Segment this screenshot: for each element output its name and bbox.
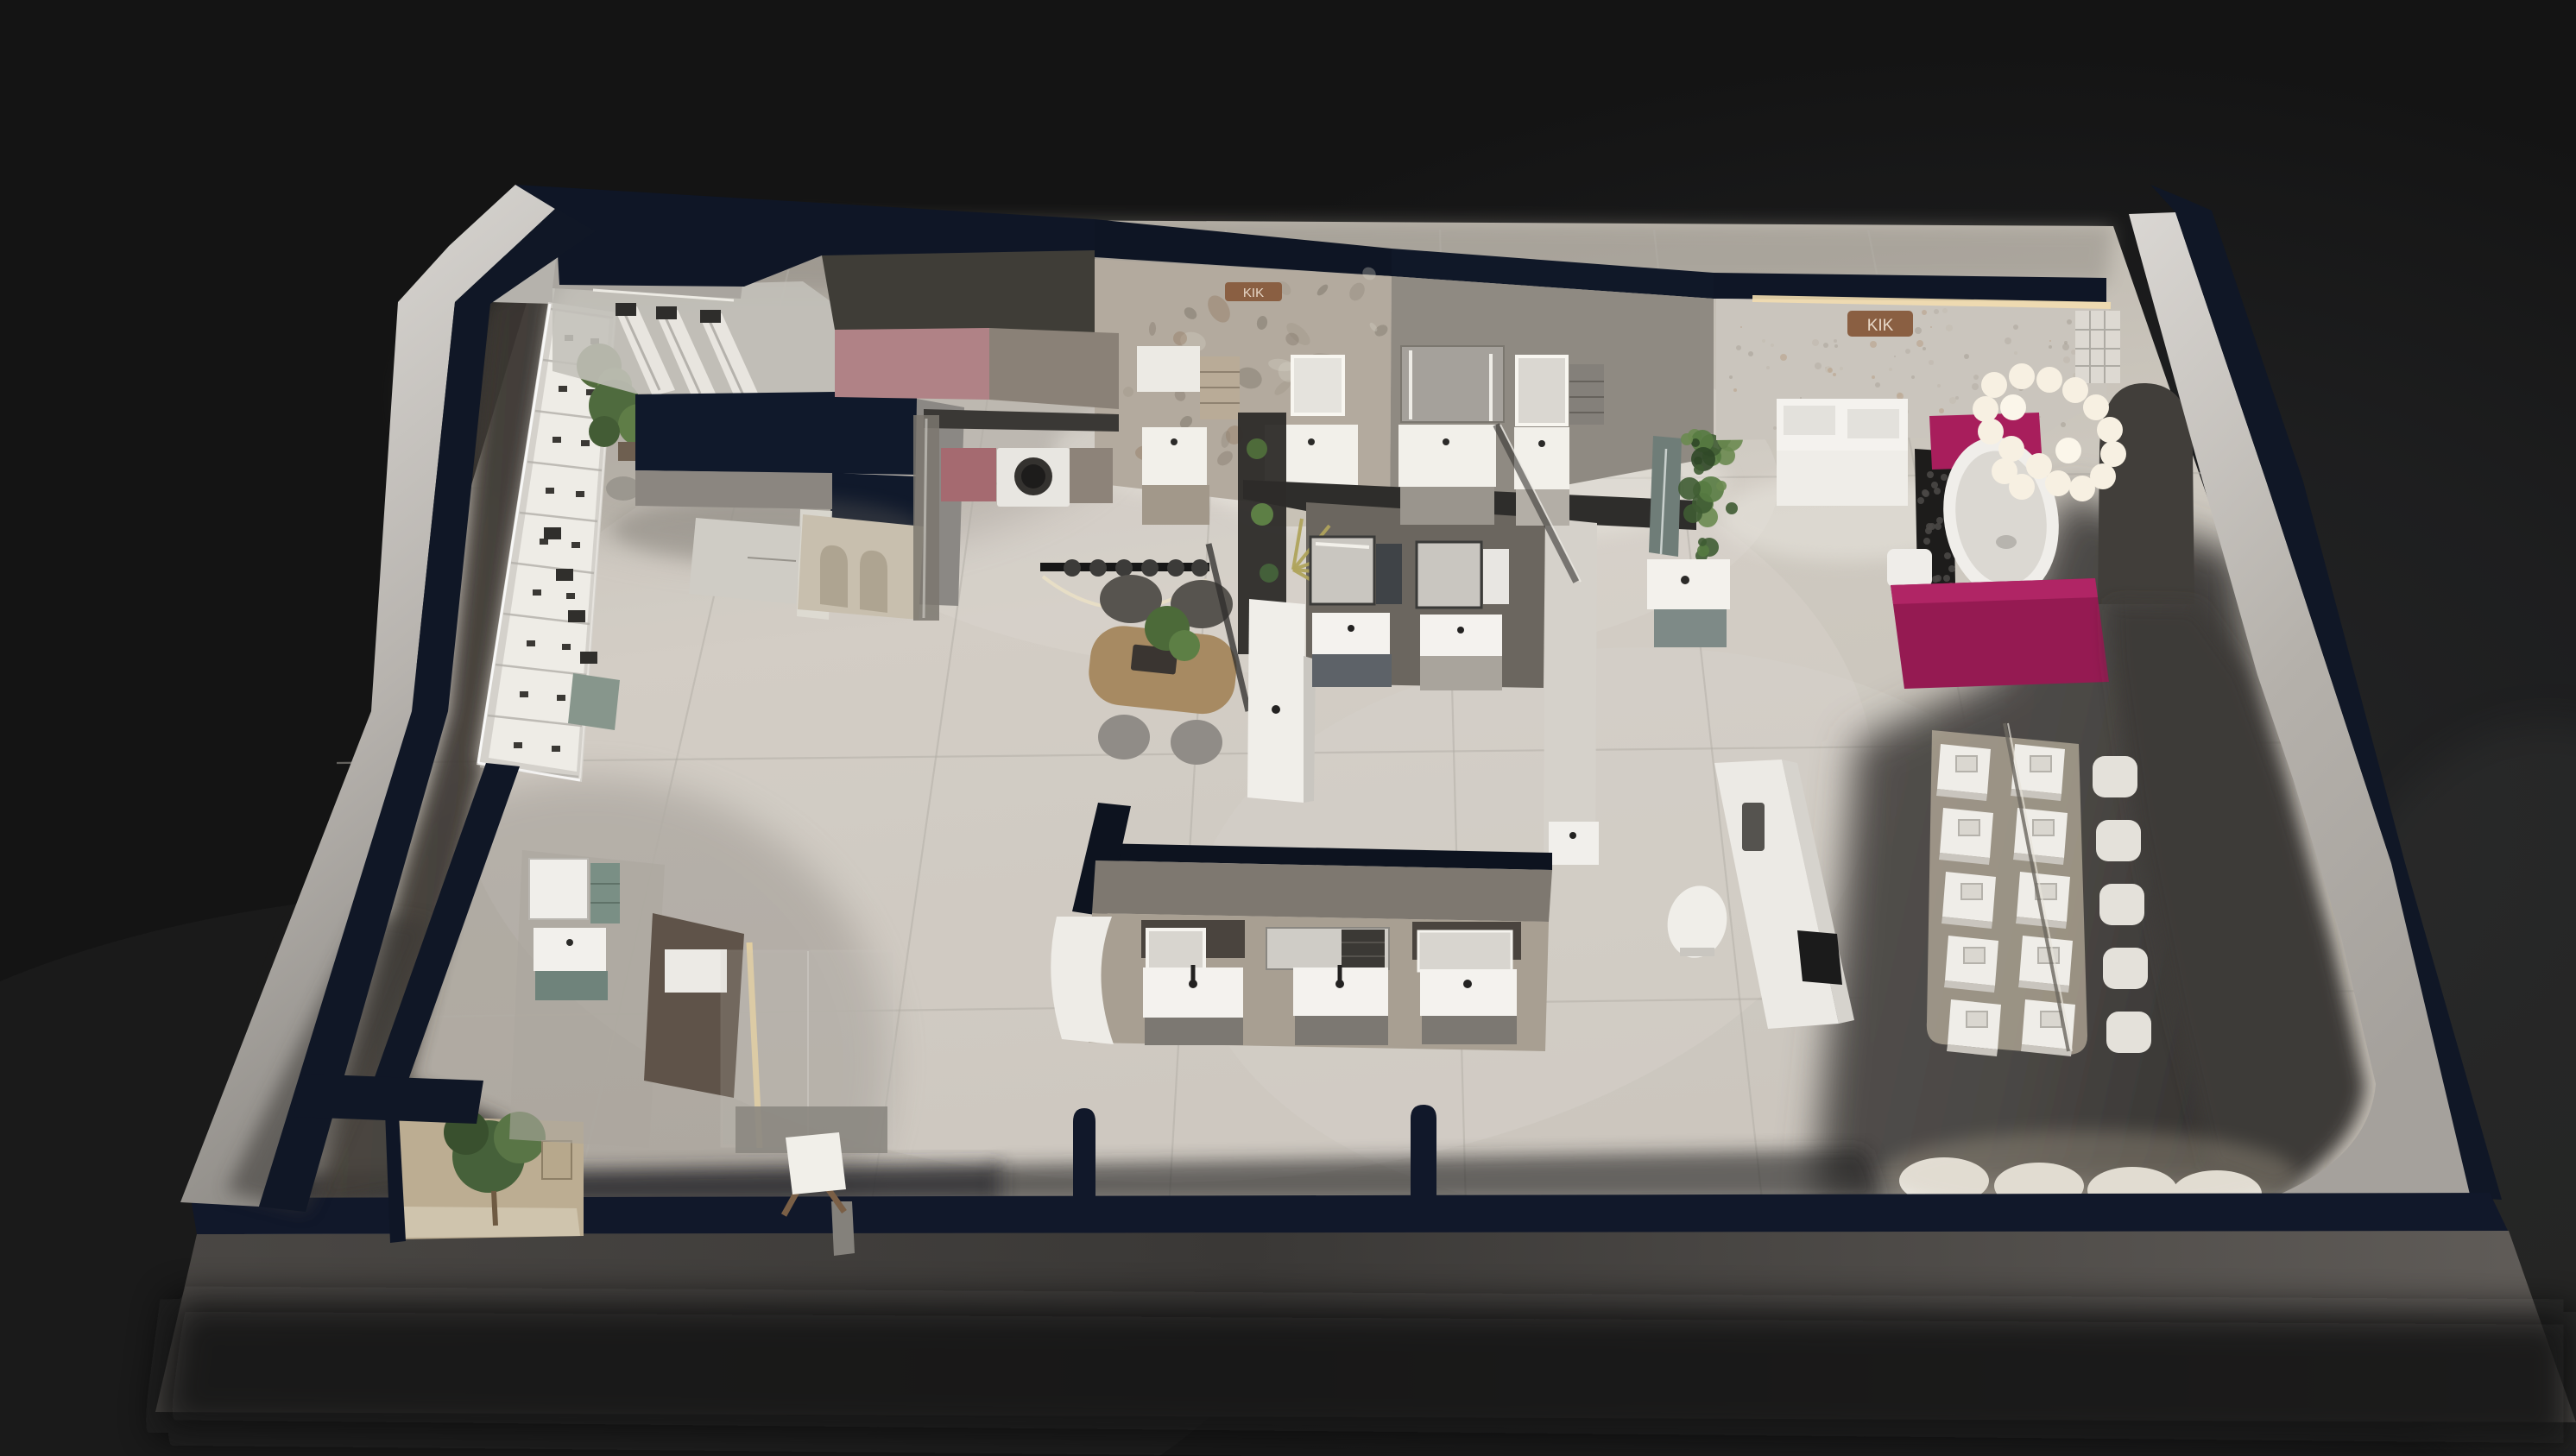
svg-text:KIK: KIK	[1867, 317, 1894, 335]
svg-text:KIK: KIK	[1243, 286, 1264, 300]
